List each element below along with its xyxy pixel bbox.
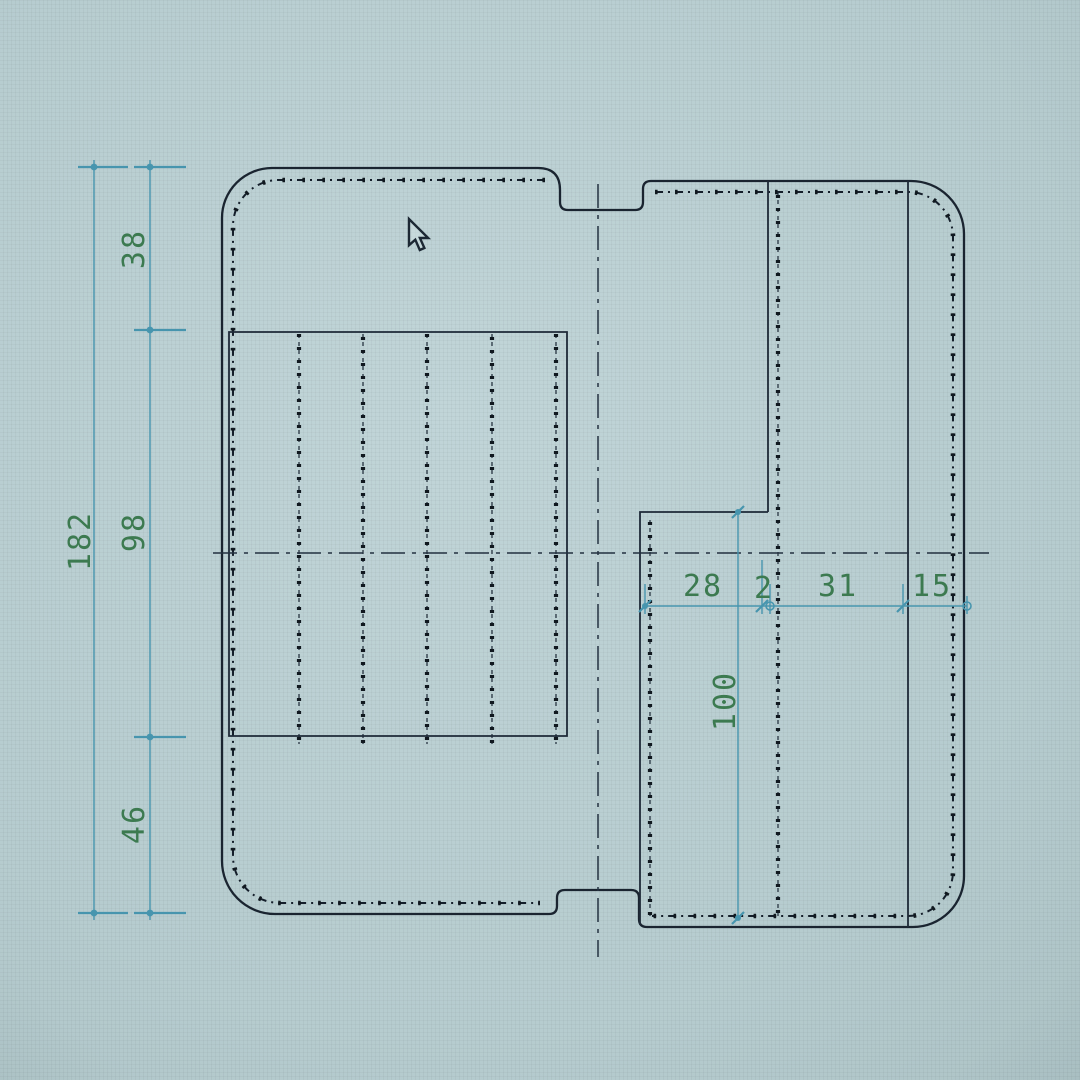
card-slot-stitch-columns [299, 334, 556, 744]
dim-label-98: 98 [117, 512, 152, 552]
cad-drawing-canvas[interactable]: 38 98 46 182 100 28 2 31 15 [0, 0, 1080, 1080]
card-pocket-outline [229, 332, 567, 736]
monitor-photo: 38 98 46 182 100 28 2 31 15 [0, 0, 1080, 1080]
dim-label-46: 46 [117, 804, 152, 844]
dimension-labels: 38 98 46 182 100 28 2 31 15 [63, 229, 952, 844]
dim-label-100: 100 [708, 671, 743, 731]
centerlines [213, 184, 989, 957]
dim-label-38: 38 [117, 229, 152, 269]
left-panel-perimeter-stitch [233, 180, 545, 903]
dim-label-182: 182 [63, 511, 98, 571]
mouse-cursor-icon [409, 219, 428, 250]
pattern-outer-outline [222, 168, 964, 927]
dim-label-15: 15 [912, 569, 952, 604]
dim-label-2: 2 [754, 571, 774, 606]
dim-label-31: 31 [818, 569, 858, 604]
right-panel-fold-lines [768, 181, 908, 927]
dim-label-28: 28 [683, 569, 723, 604]
